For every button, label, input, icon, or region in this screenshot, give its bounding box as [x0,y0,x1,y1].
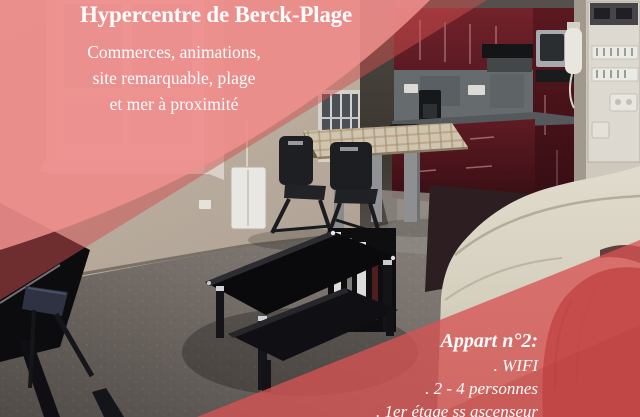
subtitle-line: et mer à proximité [0,91,348,117]
wall-outlet [199,200,211,209]
feature-line: . WIFI [376,354,538,377]
headline: Hypercentre de Berck-Plage [0,2,432,28]
rental-flyer: Hypercentre de Berck-Plage Commerces, an… [0,0,640,417]
extractor-hood [482,44,538,72]
apartment-heading: Appart n°2: [376,328,538,354]
backsplash-outlet [404,84,418,93]
subtitle-line: Commerces, animations, [0,39,348,65]
coffee-machine [419,90,441,122]
feature-line: . 2 - 4 personnes [376,377,538,400]
top-subtitle: Commerces, animations, site remarquable,… [0,39,348,117]
panel-socket [610,94,637,111]
apartment-info: Appart n°2: . WIFI . 2 - 4 personnes . 1… [376,328,538,417]
table-leg [216,286,224,338]
subtitle-line: site remarquable, plage [0,65,348,91]
light-switch [592,122,609,138]
backsplash-outlet [468,85,485,95]
feature-line: . 1er étage ss ascenseur [376,400,538,417]
